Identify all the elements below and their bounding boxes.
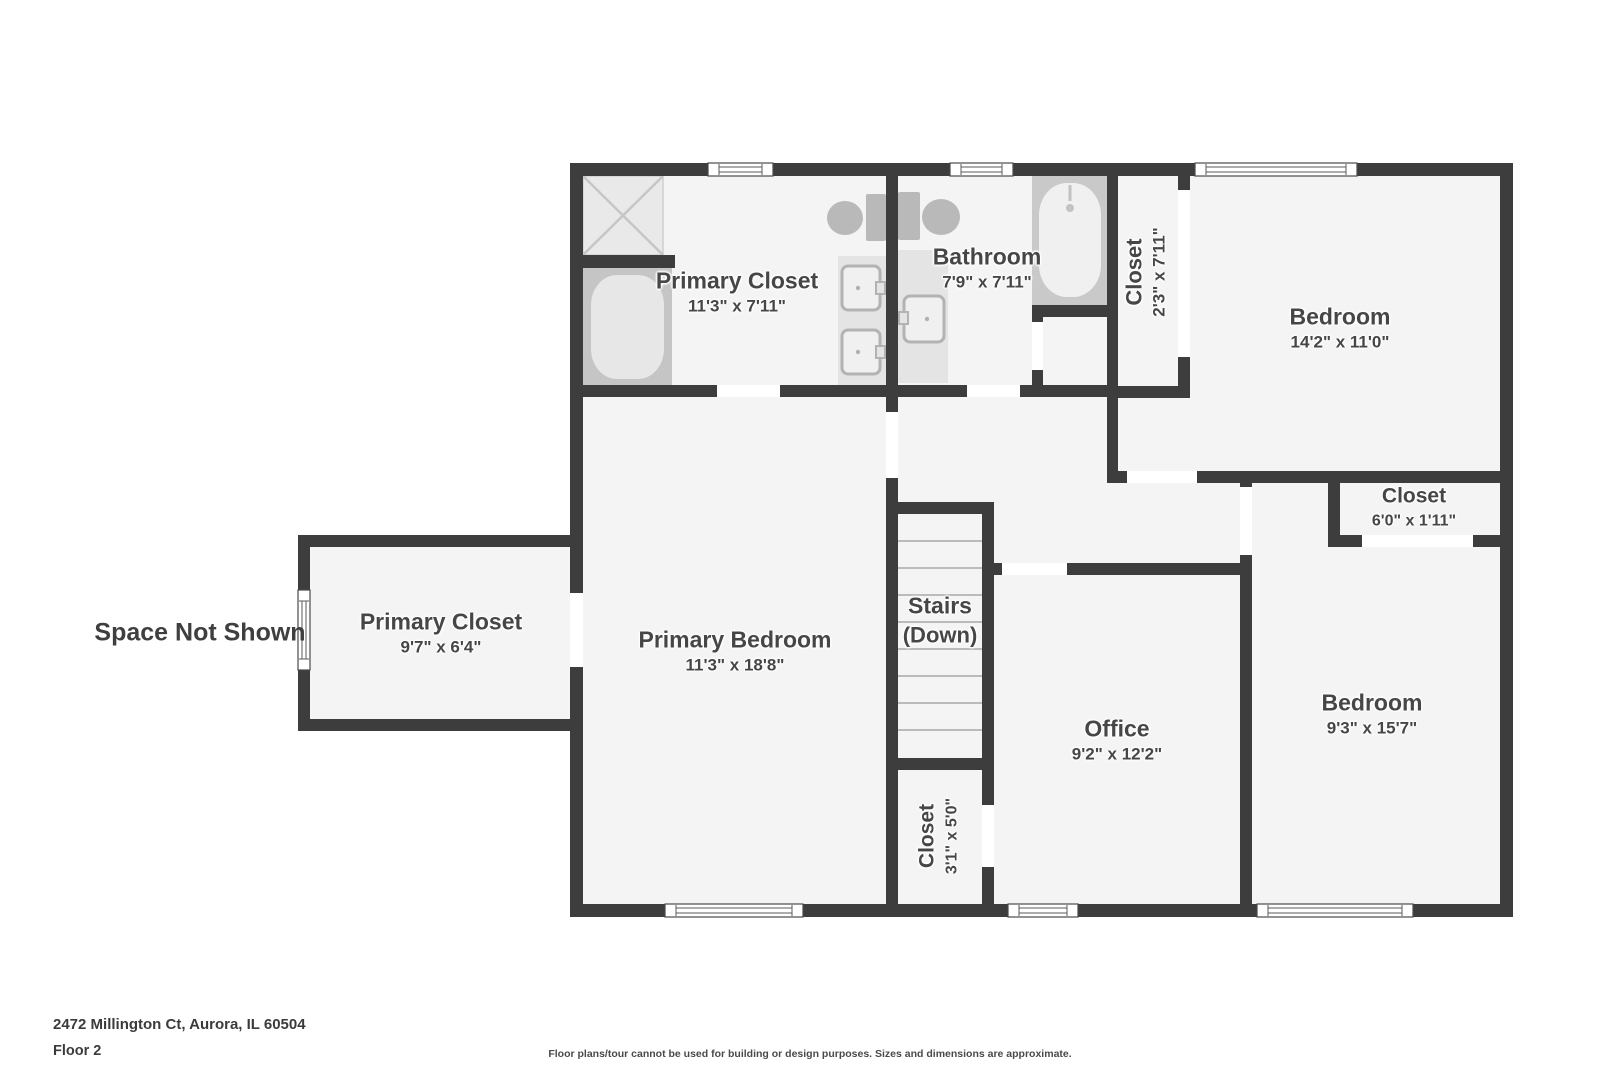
room-label-bedroom-upper: Bedroom 14'2" x 11'0"	[1290, 302, 1391, 355]
room-label-bathroom: Bathroom 7'9" x 7'11"	[933, 242, 1042, 295]
wall-segment	[1107, 176, 1118, 483]
wall-segment	[1032, 305, 1107, 317]
door-opening	[1032, 322, 1043, 370]
room-label-primary-closet-upper: Primary Closet 11'3" x 7'11"	[656, 266, 818, 319]
shower-icon	[583, 176, 663, 255]
room-label-bedroom-lower: Bedroom 9'3" x 15'7"	[1322, 688, 1423, 741]
door-opening	[886, 412, 898, 478]
door-opening	[1002, 563, 1067, 575]
room-label-closet-by-stairs: Closet 3'1" x 5'0"	[914, 798, 963, 874]
door-opening	[1240, 487, 1252, 555]
wall-segment	[298, 719, 583, 731]
bathtub-icon	[1032, 176, 1107, 305]
room-label-stairs: Stairs (Down)	[903, 590, 978, 649]
door-opening	[1178, 190, 1190, 357]
wall-segment	[886, 176, 898, 385]
window-icon	[950, 163, 1013, 176]
floor-plan-canvas	[0, 0, 1620, 1080]
wall-segment	[298, 535, 583, 547]
room-label-closet-bedroom-right: Closet 6'0" x 1'11"	[1372, 483, 1456, 532]
room-label-closet-upper: Closet 2'3" x 7'11"	[1119, 227, 1170, 316]
door-opening	[717, 385, 780, 397]
vanity-double-sink-icon	[838, 256, 886, 388]
window-icon	[1195, 163, 1357, 176]
wall-segment	[886, 758, 994, 770]
floor-plan-page: Primary Closet 11'3" x 7'11" Bathroom 7'…	[0, 0, 1620, 1080]
wall-segment	[1107, 386, 1190, 398]
window-icon	[665, 904, 803, 917]
wall-segment	[886, 502, 994, 514]
door-opening	[967, 385, 1020, 397]
room-label-office: Office 9'2" x 12'2"	[1072, 714, 1162, 767]
window-icon	[1257, 904, 1413, 917]
door-opening	[1127, 471, 1197, 483]
window-icon	[1008, 904, 1078, 917]
window-icon	[708, 163, 773, 176]
space-not-shown-label: Space Not Shown	[94, 619, 305, 648]
door-opening	[570, 593, 583, 667]
floor-number-label: Floor 2	[53, 1043, 101, 1059]
address-label: 2472 Millington Ct, Aurora, IL 60504	[53, 1016, 306, 1033]
room-label-primary-closet-left: Primary Closet 9'7" x 6'4"	[360, 607, 522, 660]
door-opening	[1362, 535, 1473, 547]
door-opening	[982, 805, 994, 867]
room-label-primary-bedroom: Primary Bedroom 11'3" x 18'8"	[638, 625, 831, 678]
disclaimer-text: Floor plans/tour cannot be used for buil…	[548, 1048, 1071, 1060]
